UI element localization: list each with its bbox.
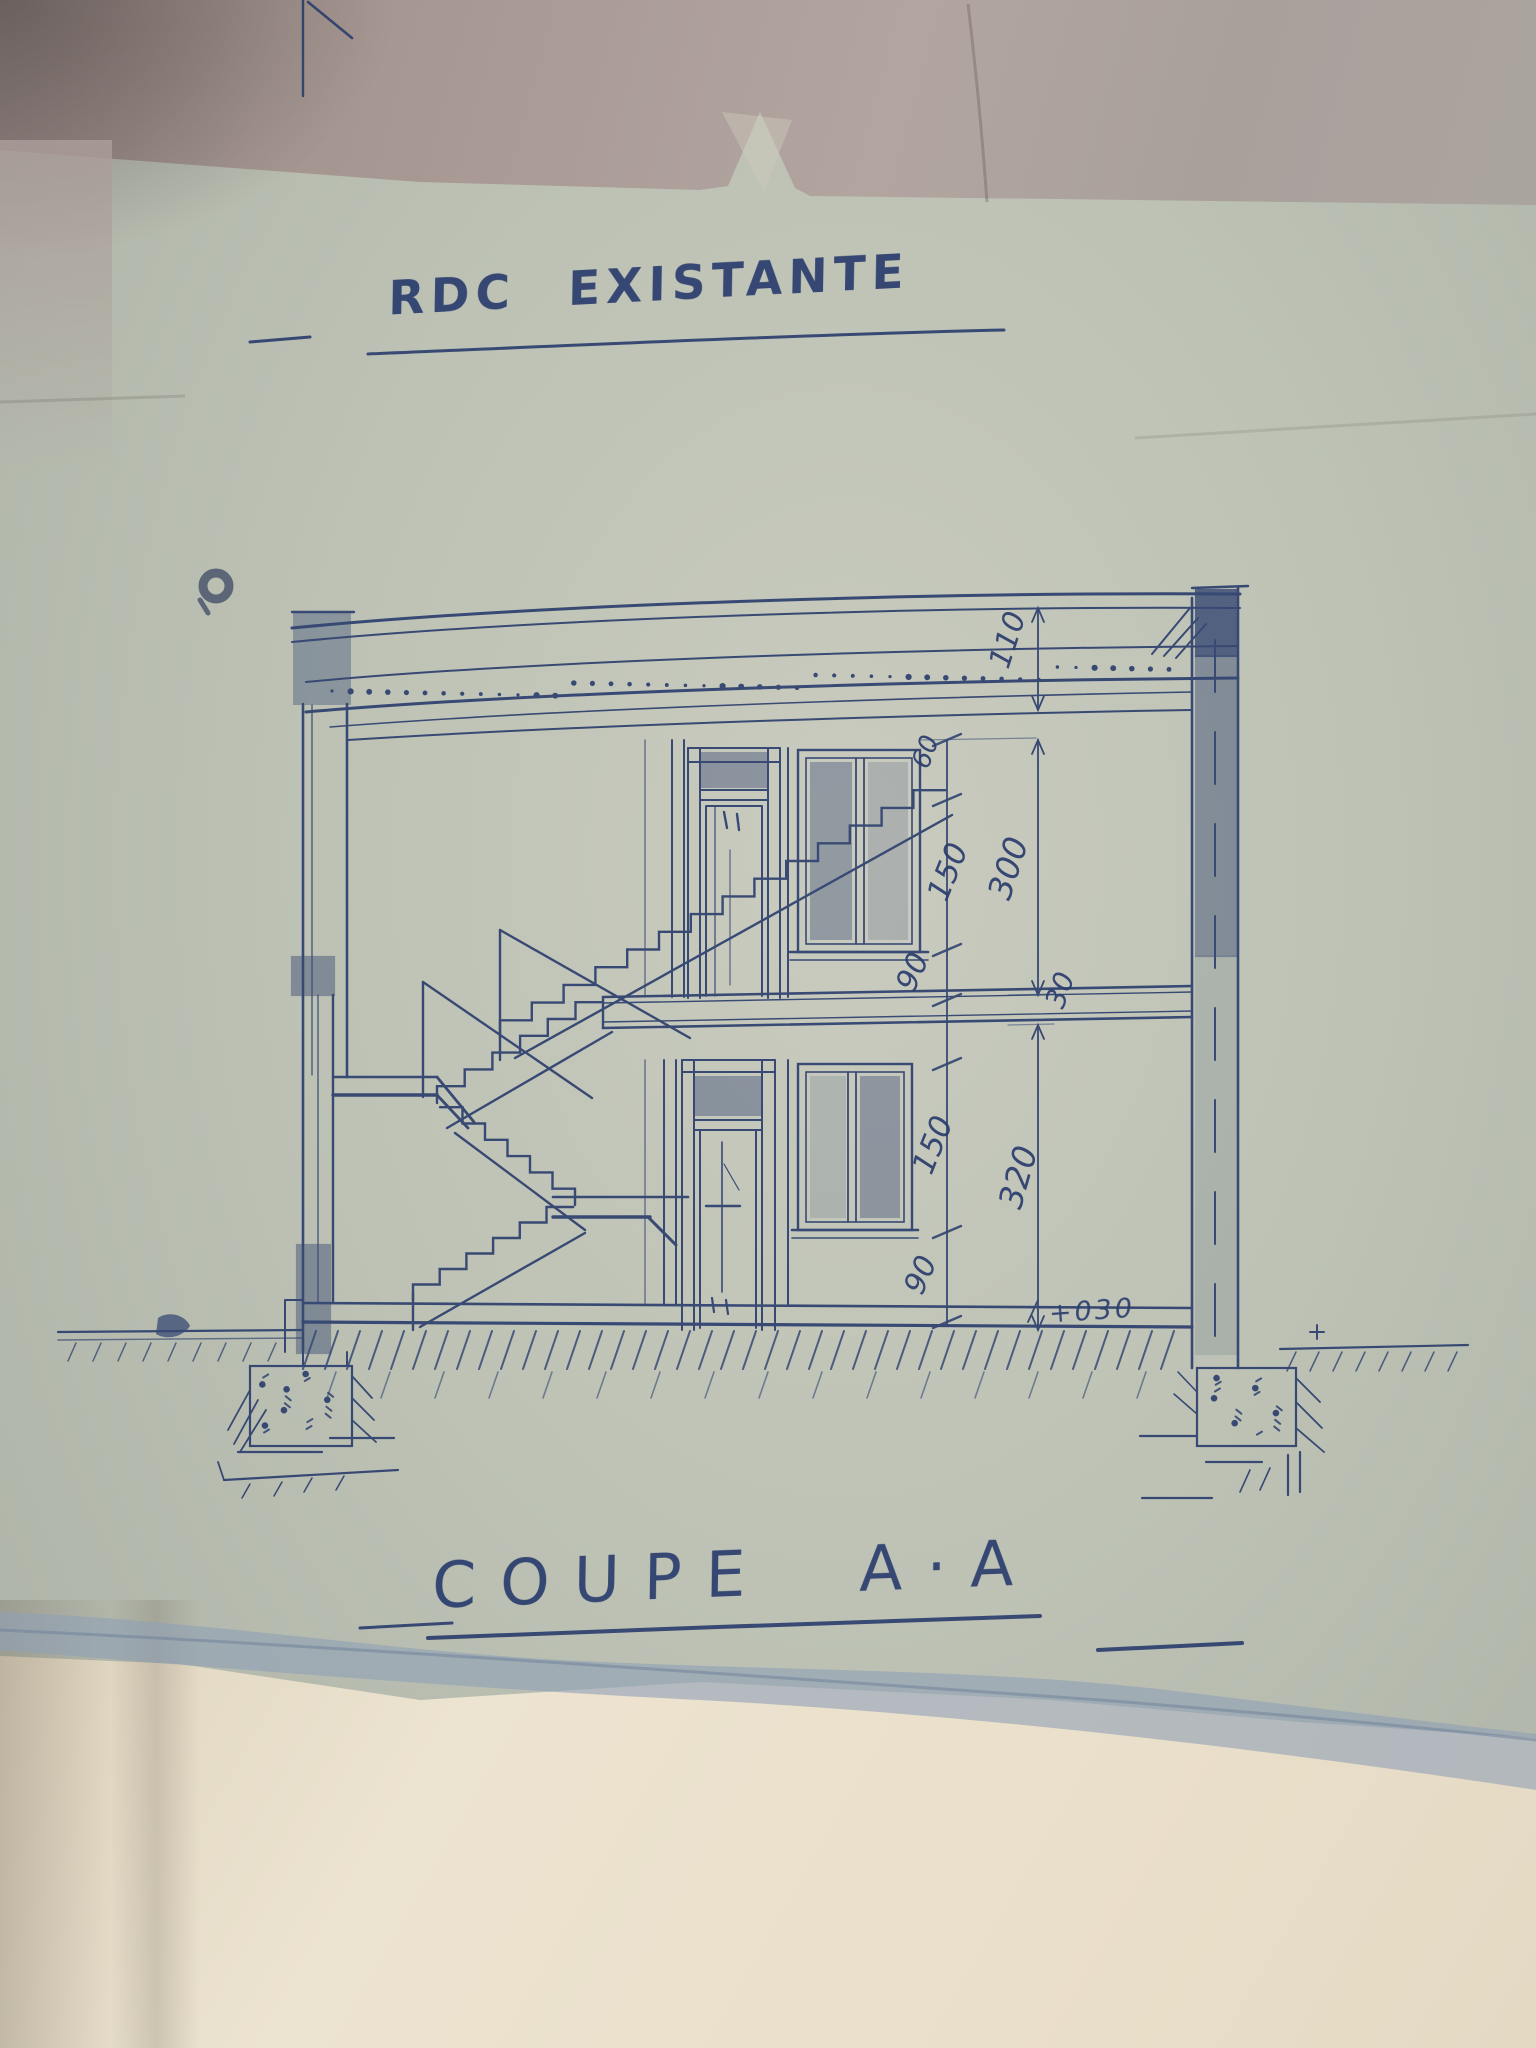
foundation-left-rubble [260,1372,333,1433]
terrain-right [1280,1325,1468,1349]
dim-ground-level: +030 [1048,1293,1136,1330]
foundation-right [1140,1368,1324,1498]
upper-window [790,750,928,960]
lower-window [792,1064,918,1238]
ceiling-line [348,710,1192,740]
fold-shadow-band [0,1612,1536,1790]
foundation-right-rubble [1212,1376,1282,1435]
terrain-right-hatch [1287,1352,1457,1371]
ink-blot [200,573,229,613]
crease-left [0,396,185,402]
right-wall [1152,586,1248,1368]
ink-layer [58,0,1468,1650]
paper-tear [722,112,792,192]
floor-slab [603,986,1192,1028]
torn-drawing-fragment [303,0,352,96]
left-wall [285,614,350,1353]
crease-vertical [968,4,987,202]
section-drawing [0,0,1536,2048]
roof-slab [292,594,1240,727]
title-underlines [250,330,1242,1650]
terrain-left-hatch [68,1343,276,1361]
terrain-left [58,1314,303,1340]
staircase [333,790,952,1330]
lower-door [682,1060,775,1330]
ground-hatch [303,1331,1174,1398]
crease-right [1135,414,1536,438]
blueprint-photo: RDC EXISTANTE COUPE A·A 110 60 150 300 9… [0,0,1536,2048]
upper-door [688,748,780,998]
